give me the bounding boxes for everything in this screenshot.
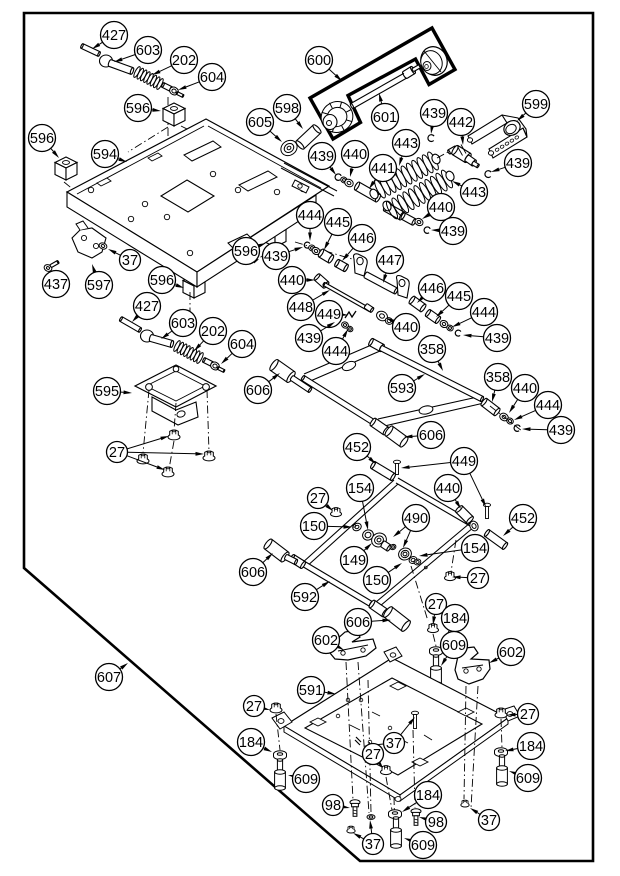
svg-text:37: 37 (122, 253, 138, 269)
svg-text:440: 440 (394, 320, 418, 336)
svg-text:27: 27 (365, 747, 381, 763)
svg-text:184: 184 (443, 611, 467, 627)
svg-text:599: 599 (524, 97, 548, 113)
svg-text:27: 27 (428, 597, 444, 613)
svg-text:607: 607 (97, 670, 121, 686)
svg-text:439: 439 (264, 249, 288, 265)
svg-text:358: 358 (420, 342, 444, 358)
svg-text:603: 603 (171, 316, 195, 332)
svg-text:601: 601 (373, 110, 397, 126)
svg-text:439: 439 (441, 224, 465, 240)
svg-text:154: 154 (348, 481, 372, 497)
svg-text:98: 98 (325, 798, 341, 814)
svg-text:598: 598 (275, 101, 299, 117)
svg-text:594: 594 (93, 147, 117, 163)
svg-text:444: 444 (298, 208, 322, 224)
svg-text:440: 440 (280, 273, 304, 289)
svg-text:449: 449 (317, 307, 341, 323)
svg-text:606: 606 (346, 615, 370, 631)
svg-text:609: 609 (442, 638, 466, 654)
svg-text:27: 27 (246, 699, 262, 715)
svg-text:609: 609 (516, 771, 540, 787)
svg-text:605: 605 (248, 115, 272, 131)
svg-text:440: 440 (436, 481, 460, 497)
svg-text:604: 604 (200, 70, 224, 86)
svg-text:446: 446 (350, 231, 374, 247)
svg-text:184: 184 (239, 735, 263, 751)
svg-text:592: 592 (293, 590, 317, 606)
svg-text:202: 202 (201, 324, 225, 340)
svg-text:446: 446 (420, 281, 444, 297)
svg-text:442: 442 (449, 115, 473, 131)
svg-text:444: 444 (472, 305, 496, 321)
svg-text:444: 444 (536, 398, 560, 414)
svg-text:602: 602 (499, 645, 523, 661)
svg-text:602: 602 (314, 633, 338, 649)
svg-text:439: 439 (310, 149, 334, 165)
svg-text:596: 596 (126, 101, 150, 117)
svg-text:98: 98 (428, 815, 444, 831)
svg-text:445: 445 (447, 289, 471, 305)
svg-text:593: 593 (390, 381, 414, 397)
svg-text:440: 440 (429, 200, 453, 216)
svg-text:448: 448 (289, 300, 313, 316)
svg-text:603: 603 (136, 43, 160, 59)
svg-text:596: 596 (30, 131, 54, 147)
svg-text:443: 443 (462, 185, 486, 201)
svg-text:37: 37 (386, 736, 402, 752)
svg-text:452: 452 (511, 511, 535, 527)
svg-text:596: 596 (234, 244, 258, 260)
svg-text:452: 452 (345, 440, 369, 456)
svg-text:439: 439 (422, 106, 446, 122)
svg-text:443: 443 (394, 136, 418, 152)
svg-text:591: 591 (299, 683, 323, 699)
svg-text:445: 445 (326, 215, 350, 231)
svg-text:490: 490 (404, 511, 428, 527)
svg-text:439: 439 (549, 423, 573, 439)
svg-text:37: 37 (365, 837, 381, 853)
svg-text:606: 606 (241, 565, 265, 581)
svg-text:27: 27 (109, 445, 125, 461)
svg-text:444: 444 (324, 344, 348, 360)
svg-text:609: 609 (411, 838, 435, 854)
svg-text:439: 439 (506, 156, 530, 172)
svg-text:595: 595 (95, 384, 119, 400)
svg-text:154: 154 (463, 541, 487, 557)
svg-text:427: 427 (102, 28, 126, 44)
svg-text:427: 427 (135, 299, 159, 315)
svg-text:449: 449 (452, 454, 476, 470)
svg-text:27: 27 (310, 491, 326, 507)
svg-text:150: 150 (365, 573, 389, 589)
svg-text:437: 437 (44, 277, 68, 293)
svg-text:440: 440 (513, 381, 537, 397)
svg-text:447: 447 (378, 253, 402, 269)
svg-text:27: 27 (520, 707, 536, 723)
svg-text:184: 184 (519, 739, 543, 755)
svg-text:150: 150 (302, 519, 326, 535)
svg-text:606: 606 (419, 428, 443, 444)
svg-text:184: 184 (416, 788, 440, 804)
svg-text:439: 439 (297, 331, 321, 347)
svg-text:596: 596 (150, 273, 174, 289)
svg-text:600: 600 (307, 53, 331, 69)
svg-text:202: 202 (172, 53, 196, 69)
svg-text:440: 440 (343, 147, 367, 163)
svg-text:149: 149 (342, 553, 366, 569)
svg-text:37: 37 (481, 813, 497, 829)
svg-text:441: 441 (371, 161, 395, 177)
svg-text:439: 439 (485, 331, 509, 347)
svg-text:604: 604 (230, 337, 254, 353)
svg-text:597: 597 (87, 278, 111, 294)
svg-text:358: 358 (486, 370, 510, 386)
svg-text:27: 27 (470, 571, 486, 587)
svg-text:609: 609 (294, 772, 318, 788)
svg-text:606: 606 (246, 383, 270, 399)
